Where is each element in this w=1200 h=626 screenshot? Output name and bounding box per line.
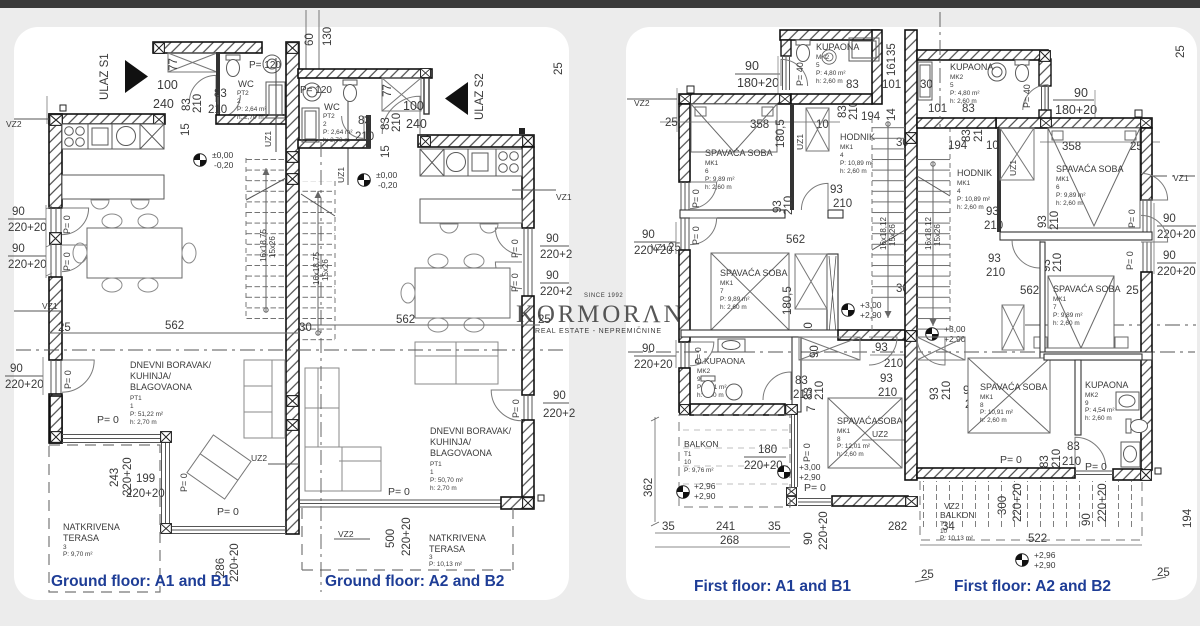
svg-text:P: 9,76 m²: P: 9,76 m² (684, 467, 713, 474)
svg-text:210: 210 (884, 358, 903, 370)
svg-text:MK1: MK1 (840, 144, 854, 151)
svg-text:KUPAONA: KUPAONA (1085, 380, 1128, 390)
svg-text:210: 210 (814, 381, 826, 400)
svg-text:P= 0: P= 0 (179, 473, 189, 492)
svg-text:90: 90 (1081, 513, 1093, 526)
svg-text:MK2: MK2 (816, 54, 830, 61)
svg-text:10: 10 (986, 140, 999, 152)
svg-text:500: 500 (385, 529, 397, 548)
svg-text:T1: T1 (684, 451, 692, 458)
svg-text:35: 35 (662, 521, 675, 533)
svg-text:60: 60 (304, 33, 316, 46)
svg-text:UZ1: UZ1 (263, 131, 273, 147)
svg-text:TERASA: TERASA (429, 544, 465, 554)
svg-text:DNEVNI BORAVAK/: DNEVNI BORAVAK/ (130, 360, 212, 370)
svg-text:+3,00: +3,00 (944, 324, 966, 334)
svg-text:h: 2,60 m: h: 2,60 m (1085, 415, 1112, 422)
svg-text:15x26: 15x26 (321, 259, 330, 281)
svg-text:UZ1: UZ1 (336, 167, 346, 183)
svg-text:93: 93 (986, 206, 999, 218)
svg-text:P= 0: P= 0 (62, 252, 72, 271)
svg-text:210: 210 (941, 381, 953, 400)
svg-text:SPAVAĆA SOBA: SPAVAĆA SOBA (1053, 284, 1121, 294)
svg-text:P= 0: P= 0 (510, 239, 520, 258)
svg-text:220+20: 220+20 (634, 359, 673, 371)
svg-text:83: 83 (214, 88, 227, 100)
svg-text:TERASA: TERASA (63, 533, 99, 543)
svg-text:First floor: A1 and B1: First floor: A1 and B1 (694, 578, 851, 595)
svg-text:P: 10,91 m²: P: 10,91 m² (980, 409, 1013, 416)
svg-text:MK1: MK1 (837, 428, 851, 435)
svg-text:83: 83 (846, 79, 859, 91)
svg-text:VZ2: VZ2 (634, 98, 650, 108)
svg-text:210: 210 (986, 267, 1005, 279)
svg-text:25: 25 (1126, 285, 1139, 297)
svg-text:210: 210 (783, 196, 795, 215)
svg-text:358: 358 (1062, 141, 1081, 153)
svg-text:MK2: MK2 (950, 74, 964, 81)
svg-text:220+20: 220+20 (8, 222, 47, 234)
svg-text:77: 77 (168, 58, 180, 71)
svg-text:180+20: 180+20 (1055, 103, 1097, 117)
svg-text:SINCE 1992: SINCE 1992 (584, 293, 623, 299)
svg-text:DNEVNI BORAVAK/: DNEVNI BORAVAK/ (430, 426, 512, 436)
svg-text:220+20: 220+20 (8, 259, 47, 271)
svg-text:±0,00: ±0,00 (212, 150, 233, 160)
svg-text:25: 25 (665, 117, 678, 129)
svg-text:220+20: 220+20 (818, 511, 830, 550)
svg-text:15: 15 (380, 145, 392, 158)
svg-text:161: 161 (886, 57, 898, 76)
svg-text:h: 2,70 m: h: 2,70 m (430, 485, 457, 492)
svg-text:P= 120: P= 120 (300, 85, 332, 96)
svg-text:P= 0: P= 0 (1125, 251, 1135, 270)
svg-text:16x18,12: 16x18,12 (924, 217, 933, 250)
svg-text:+3,00: +3,00 (860, 300, 882, 310)
svg-text:VZ2: VZ2 (6, 119, 22, 129)
svg-text:562: 562 (165, 320, 184, 332)
svg-text:358: 358 (750, 119, 769, 131)
svg-text:101: 101 (928, 103, 947, 115)
svg-text:P: 4,80 m²: P: 4,80 m² (950, 90, 979, 97)
svg-text:35: 35 (768, 521, 781, 533)
svg-text:P: 2,64 m²: P: 2,64 m² (237, 106, 266, 113)
svg-text:NATKRIVENA: NATKRIVENA (429, 533, 486, 543)
svg-text:NATKRIVENA: NATKRIVENA (63, 522, 120, 532)
svg-text:REAL ESTATE - NEPREMIČNINE: REAL ESTATE - NEPREMIČNINE (535, 326, 662, 335)
svg-text:6: 6 (705, 168, 709, 175)
svg-text:h: 2,60 m: h: 2,60 m (840, 168, 867, 175)
svg-text:9: 9 (697, 376, 701, 383)
svg-text:220+2: 220+2 (540, 286, 572, 298)
svg-text:83: 83 (962, 103, 975, 115)
svg-text:P: 9,70 m²: P: 9,70 m² (63, 551, 92, 558)
svg-text:P= 0: P= 0 (802, 443, 812, 462)
svg-text:P= 0: P= 0 (694, 347, 703, 364)
svg-text:KUPAONA: KUPAONA (816, 42, 859, 52)
svg-text:MK1: MK1 (980, 394, 994, 401)
svg-text:90: 90 (1163, 250, 1176, 262)
svg-text:P: 50,70 m²: P: 50,70 m² (430, 477, 463, 484)
svg-text:199: 199 (136, 473, 155, 485)
svg-text:210: 210 (1049, 211, 1061, 230)
svg-text:KUHINJA/: KUHINJA/ (130, 371, 172, 381)
svg-text:SPAVAĆA SOBA: SPAVAĆA SOBA (720, 268, 788, 278)
svg-text:PT2: PT2 (323, 113, 335, 120)
svg-text:h: 2,70 m: h: 2,70 m (130, 419, 157, 426)
svg-text:Ground floor: A1 and B1: Ground floor: A1 and B1 (51, 573, 231, 590)
svg-text:15x26: 15x26 (933, 224, 942, 246)
svg-text:UZ2: UZ2 (872, 429, 888, 439)
svg-text:90: 90 (809, 345, 821, 358)
svg-text:220+20: 220+20 (1157, 229, 1196, 241)
svg-text:P= 120: P= 120 (249, 60, 281, 71)
svg-text:+2,90: +2,90 (694, 491, 716, 501)
svg-text:SPAVAĆA SOBA: SPAVAĆA SOBA (705, 148, 773, 158)
svg-text:220+2: 220+2 (543, 408, 575, 420)
svg-text:SPAVAĆA SOBA: SPAVAĆA SOBA (1056, 164, 1124, 174)
svg-text:210: 210 (192, 94, 204, 113)
svg-text:210: 210 (355, 131, 374, 143)
svg-text:83: 83 (1039, 455, 1051, 468)
svg-text:+2,96: +2,96 (694, 481, 716, 491)
svg-text:220+20: 220+20 (1012, 483, 1024, 522)
svg-text:210: 210 (1051, 449, 1063, 468)
svg-text:16x18,75: 16x18,75 (259, 229, 268, 262)
svg-text:90: 90 (10, 363, 23, 375)
svg-text:P= 40: P= 40 (1022, 84, 1032, 108)
svg-text:7: 7 (806, 406, 818, 412)
svg-text:MK1: MK1 (1053, 296, 1067, 303)
svg-text:PT2: PT2 (237, 90, 249, 97)
svg-text:90: 90 (12, 243, 25, 255)
svg-text:30: 30 (299, 322, 312, 334)
svg-text:P: 10,89 m²: P: 10,89 m² (957, 196, 990, 203)
svg-text:-0,20: -0,20 (378, 180, 398, 190)
svg-text:P: 2,64 m²: P: 2,64 m² (323, 129, 352, 136)
svg-text:h: 2,60 m: h: 2,60 m (720, 304, 747, 311)
svg-text:93: 93 (1037, 215, 1049, 228)
svg-text:P= 0: P= 0 (388, 486, 410, 498)
svg-text:4: 4 (957, 188, 961, 195)
svg-text:P: 9,89 m²: P: 9,89 m² (705, 176, 734, 183)
svg-text:220+20: 220+20 (229, 543, 241, 582)
svg-text:WC: WC (238, 79, 254, 90)
svg-text:P: 51,22 m²: P: 51,22 m² (130, 411, 163, 418)
svg-text:7: 7 (720, 288, 724, 295)
svg-text:BLAGOVAONA: BLAGOVAONA (430, 448, 492, 458)
svg-text:P= 0: P= 0 (97, 414, 119, 426)
svg-text:83: 83 (358, 115, 371, 127)
svg-text:90: 90 (546, 233, 559, 245)
svg-text:83: 83 (1067, 441, 1080, 453)
svg-text:210: 210 (208, 104, 227, 116)
svg-text:562: 562 (396, 314, 415, 326)
svg-text:362: 362 (643, 478, 655, 497)
svg-text:220+20: 220+20 (5, 379, 44, 391)
svg-text:8: 8 (980, 402, 984, 409)
svg-text:210: 210 (984, 220, 1003, 232)
svg-text:210: 210 (1062, 456, 1081, 468)
svg-text:194: 194 (948, 140, 968, 152)
svg-text:100: 100 (157, 78, 178, 92)
svg-text:P= 0: P= 0 (804, 482, 826, 494)
svg-text:h: 2,60 m: h: 2,60 m (1053, 320, 1080, 327)
svg-text:KORMORΛN: KORMORΛN (516, 301, 684, 328)
svg-text:2: 2 (237, 98, 241, 105)
svg-text:P: 4,80 m²: P: 4,80 m² (816, 70, 845, 77)
svg-text:93: 93 (880, 373, 893, 385)
svg-text:ULAZ S2: ULAZ S2 (474, 73, 486, 120)
svg-text:BALKON: BALKON (940, 510, 975, 520)
svg-text:90: 90 (642, 229, 655, 241)
svg-text:522: 522 (1028, 533, 1047, 545)
svg-text:7: 7 (1053, 304, 1057, 311)
svg-text:10: 10 (940, 528, 948, 535)
svg-text:P: 9,89 m²: P: 9,89 m² (1053, 312, 1082, 319)
svg-text:MK1: MK1 (705, 160, 719, 167)
svg-text:30: 30 (920, 79, 933, 91)
svg-text:210: 210 (1052, 253, 1064, 272)
svg-text:P= 0: P= 0 (511, 399, 521, 418)
svg-text:300: 300 (997, 496, 1009, 515)
svg-text:WC: WC (324, 102, 340, 113)
svg-text:PT1: PT1 (130, 395, 142, 402)
svg-text:282: 282 (888, 521, 907, 533)
svg-text:2: 2 (323, 121, 327, 128)
svg-text:3: 3 (63, 544, 67, 551)
svg-text:P= 0: P= 0 (1000, 454, 1022, 466)
svg-text:+2,90: +2,90 (944, 334, 966, 344)
svg-text:220+20: 220+20 (1157, 266, 1196, 278)
svg-text:210: 210 (878, 387, 897, 399)
svg-text:P= 40: P= 40 (795, 62, 805, 86)
svg-text:101: 101 (882, 79, 901, 91)
svg-text:1: 1 (130, 403, 134, 410)
svg-text:243: 243 (109, 468, 121, 487)
svg-text:P: 12,01 m²: P: 12,01 m² (837, 443, 870, 450)
svg-text:210: 210 (391, 113, 403, 132)
svg-text:4: 4 (840, 152, 844, 159)
svg-text:6: 6 (1056, 184, 1060, 191)
svg-text:15x26: 15x26 (268, 236, 277, 258)
svg-text:25: 25 (1175, 45, 1187, 58)
svg-text:240: 240 (153, 97, 174, 111)
svg-text:130: 130 (322, 27, 334, 46)
svg-text:220+2: 220+2 (540, 249, 572, 261)
svg-text:VZ2: VZ2 (338, 529, 354, 539)
svg-text:h: 2,60 m: h: 2,60 m (1056, 200, 1083, 207)
svg-text:P: 9,89 m²: P: 9,89 m² (720, 296, 749, 303)
svg-text:220+20: 220+20 (401, 517, 413, 556)
svg-text:25: 25 (668, 242, 681, 254)
svg-text:P: 9,89 m²: P: 9,89 m² (1056, 192, 1085, 199)
svg-text:90: 90 (803, 532, 815, 545)
svg-text:90: 90 (1163, 213, 1176, 225)
svg-text:±0,00: ±0,00 (376, 170, 397, 180)
svg-text:16x18,75: 16x18,75 (312, 252, 321, 285)
svg-text:HODNIK: HODNIK (840, 132, 875, 142)
svg-text:P: 4,54 m²: P: 4,54 m² (1085, 407, 1114, 414)
svg-text:h: 2,60 m: h: 2,60 m (957, 204, 984, 211)
svg-text:+2,90: +2,90 (860, 310, 882, 320)
svg-text:194: 194 (1182, 508, 1194, 528)
svg-text:210: 210 (833, 198, 852, 210)
svg-text:KUHINJA/: KUHINJA/ (430, 437, 472, 447)
svg-text:SPAVAĆA SOBA: SPAVAĆA SOBA (980, 382, 1048, 392)
svg-text:90: 90 (1074, 86, 1088, 100)
svg-text:16x18,12: 16x18,12 (879, 217, 888, 250)
svg-text:1: 1 (430, 469, 434, 476)
svg-text:3: 3 (429, 554, 433, 561)
svg-text:P= 0: P= 0 (691, 189, 701, 208)
svg-text:P= 0: P= 0 (62, 215, 72, 234)
svg-text:VZ1: VZ1 (556, 192, 572, 202)
svg-text:P: 10,13 m²: P: 10,13 m² (940, 535, 973, 542)
svg-text:SPAVAĆASOBA: SPAVAĆASOBA (837, 416, 903, 426)
svg-text:5: 5 (950, 82, 954, 89)
svg-text:220+20: 220+20 (126, 488, 165, 500)
svg-text:ULAZ S1: ULAZ S1 (99, 53, 111, 100)
svg-text:220+20: 220+20 (1097, 483, 1109, 522)
svg-text:83: 83 (795, 375, 808, 387)
svg-text:93: 93 (875, 342, 888, 354)
svg-text:+3,00: +3,00 (799, 462, 821, 472)
svg-text:93: 93 (929, 387, 941, 400)
svg-text:P: 10,13 m²: P: 10,13 m² (429, 561, 462, 568)
svg-text:P: 10,89 m²: P: 10,89 m² (840, 160, 873, 167)
svg-text:h: 2,60 m: h: 2,60 m (980, 417, 1007, 424)
svg-text:P= 0: P= 0 (217, 506, 239, 518)
svg-text:h: 2,60 m: h: 2,60 m (705, 184, 732, 191)
svg-text:90: 90 (546, 270, 559, 282)
svg-text:h: 2,70 m: h: 2,70 m (323, 137, 350, 144)
svg-text:+2,96: +2,96 (1034, 550, 1056, 560)
svg-text:180,5: 180,5 (782, 286, 794, 315)
svg-text:VZ1: VZ1 (651, 242, 667, 252)
svg-text:268: 268 (720, 535, 739, 547)
svg-text:180+20: 180+20 (737, 76, 779, 90)
svg-text:KUPAONA: KUPAONA (950, 62, 993, 72)
svg-text:93: 93 (830, 184, 843, 196)
svg-text:VZ1: VZ1 (1173, 173, 1189, 183)
svg-text:P= 0: P= 0 (63, 370, 73, 389)
svg-text:PT1: PT1 (430, 461, 442, 468)
svg-text:T1: T1 (940, 521, 948, 528)
svg-text:UZ1: UZ1 (795, 134, 805, 150)
svg-text:10: 10 (684, 459, 692, 466)
svg-text:77: 77 (382, 84, 394, 97)
svg-text:HODNIK: HODNIK (957, 168, 992, 178)
svg-text:P= 0: P= 0 (691, 226, 701, 245)
svg-text:MK2: MK2 (1085, 392, 1099, 399)
svg-text:+2,90: +2,90 (799, 472, 821, 482)
svg-text:90: 90 (745, 59, 759, 73)
svg-text:9: 9 (1085, 400, 1089, 407)
svg-text:h: 2,60 m: h: 2,60 m (816, 78, 843, 85)
svg-text:15x26: 15x26 (888, 224, 897, 246)
svg-text:240: 240 (406, 117, 427, 131)
svg-text:First floor: A2 and B2: First floor: A2 and B2 (954, 578, 1111, 595)
svg-text:90: 90 (553, 390, 566, 402)
svg-text:562: 562 (786, 234, 805, 246)
svg-text:90: 90 (12, 206, 25, 218)
svg-text:25: 25 (553, 62, 565, 75)
svg-text:35: 35 (886, 43, 898, 56)
svg-text:Ground floor: A2 and B2: Ground floor: A2 and B2 (325, 573, 504, 590)
svg-text:180,5: 180,5 (775, 119, 787, 148)
svg-text:25: 25 (58, 322, 71, 334)
svg-text:-0,20: -0,20 (214, 160, 234, 170)
svg-text:8: 8 (837, 436, 841, 443)
svg-text:BLAGOVAONA: BLAGOVAONA (130, 382, 192, 392)
svg-text:UZ1: UZ1 (1008, 160, 1018, 176)
svg-text:VZ1: VZ1 (42, 301, 58, 311)
svg-text:MK1: MK1 (720, 280, 734, 287)
svg-text:h: 2,70 m: h: 2,70 m (237, 114, 264, 121)
svg-text:220+20: 220+20 (744, 460, 783, 472)
svg-text:562: 562 (1020, 285, 1039, 297)
svg-text:15: 15 (180, 123, 192, 136)
svg-text:h: 2,60 m: h: 2,60 m (837, 451, 864, 458)
svg-text:100: 100 (403, 99, 424, 113)
svg-text:90: 90 (642, 343, 655, 355)
svg-text:5: 5 (816, 62, 820, 69)
svg-text:180: 180 (758, 444, 777, 456)
svg-text:UZ2: UZ2 (251, 453, 267, 463)
svg-text:241: 241 (716, 521, 735, 533)
svg-text:+2,90: +2,90 (1034, 560, 1056, 570)
svg-text:93: 93 (988, 253, 1001, 265)
svg-text:MK1: MK1 (957, 180, 971, 187)
svg-text:MK2: MK2 (697, 368, 711, 375)
svg-text:MK1: MK1 (1056, 176, 1070, 183)
svg-text:P= 0: P= 0 (510, 273, 520, 292)
svg-text:P= 0: P= 0 (1127, 209, 1137, 228)
svg-text:BALKON: BALKON (684, 439, 719, 449)
